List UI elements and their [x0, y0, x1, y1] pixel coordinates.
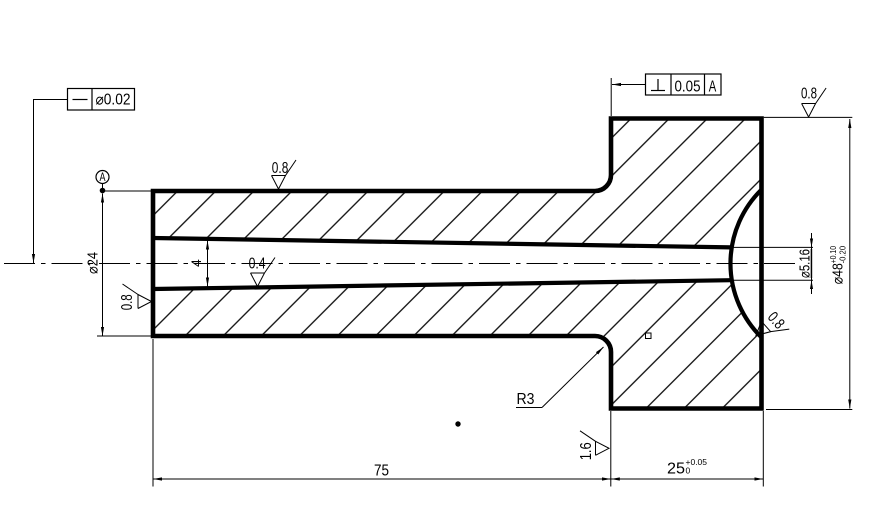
svg-text:0.8: 0.8	[764, 309, 788, 333]
svg-text:4: 4	[188, 259, 204, 267]
svg-text:0.8: 0.8	[272, 160, 289, 177]
svg-text:-0.20: -0.20	[838, 246, 848, 264]
svg-text:+0.10: +0.10	[828, 246, 838, 264]
svg-text:1.6: 1.6	[578, 442, 595, 460]
svg-text:A: A	[100, 172, 106, 184]
svg-text:⌀0.02: ⌀0.02	[96, 92, 131, 109]
svg-text:R3: R3	[517, 391, 535, 408]
svg-text:25: 25	[667, 461, 685, 478]
svg-text:⌀48: ⌀48	[830, 263, 847, 284]
svg-text:A: A	[709, 78, 717, 95]
svg-text:75: 75	[374, 463, 389, 480]
svg-text:0.05: 0.05	[675, 78, 701, 95]
svg-text:0.8: 0.8	[801, 86, 817, 103]
svg-text:0: 0	[686, 466, 691, 476]
svg-text:0.8: 0.8	[119, 294, 136, 310]
svg-text:0.4: 0.4	[249, 256, 266, 273]
svg-text:⌀24: ⌀24	[84, 252, 101, 274]
svg-text:⌀5.16: ⌀5.16	[797, 249, 814, 278]
